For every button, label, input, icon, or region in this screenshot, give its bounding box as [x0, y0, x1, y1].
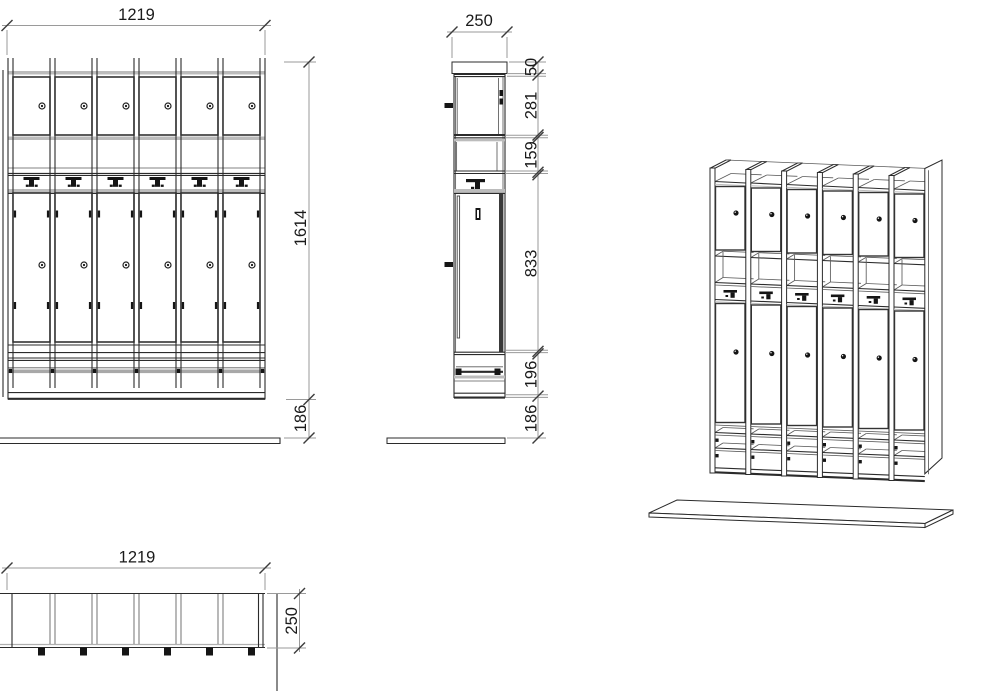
- drawing-svg: 1219 1614 186: [0, 0, 991, 691]
- plan-knobs: [38, 648, 255, 656]
- plan-view: 1219 250: [0, 549, 306, 691]
- side-dim-depth: 250: [447, 12, 513, 58]
- front-bench: [0, 438, 280, 444]
- side-dim-upper-door-label: 281: [523, 92, 541, 120]
- front-dim-height-label: 1614: [292, 210, 310, 247]
- side-dim-depth-label: 250: [465, 12, 493, 30]
- front-dim-bench-gap-label: 186: [292, 405, 310, 433]
- front-dim-width-label: 1219: [118, 6, 155, 24]
- plan-dim-width-label: 1219: [119, 549, 156, 567]
- iso-right-side-panel: [925, 160, 942, 474]
- plan-dim-width: 1219: [2, 549, 272, 591]
- cad-drawing-sheet: 1219 1614 186: [0, 0, 991, 691]
- side-dim-bench-gap-label: 186: [523, 405, 541, 433]
- front-view: 1219 1614 186: [0, 6, 316, 444]
- plan-dim-depth-label: 250: [283, 607, 301, 635]
- side-dim-stack: 50 281 159 833 196 186: [506, 57, 548, 444]
- side-view: 250 50 281: [387, 12, 548, 444]
- side-bench: [387, 438, 505, 444]
- iso-view: [649, 160, 953, 528]
- front-dim-width: 1219: [2, 6, 272, 55]
- side-dim-lower-door-label: 833: [523, 250, 541, 278]
- side-cabinet: [445, 62, 508, 398]
- iso-cabinet: [710, 160, 942, 481]
- side-dim-shelf-gap-label: 159: [523, 141, 541, 169]
- side-dim-base-label: 196: [523, 361, 541, 389]
- plan-body: [0, 594, 277, 691]
- front-dim-height: 1614 186: [284, 57, 316, 444]
- plan-dim-depth: 250: [267, 588, 306, 654]
- front-columns: [8, 58, 260, 388]
- side-dim-top-strip-label: 50: [523, 58, 541, 76]
- iso-bench: [649, 500, 953, 528]
